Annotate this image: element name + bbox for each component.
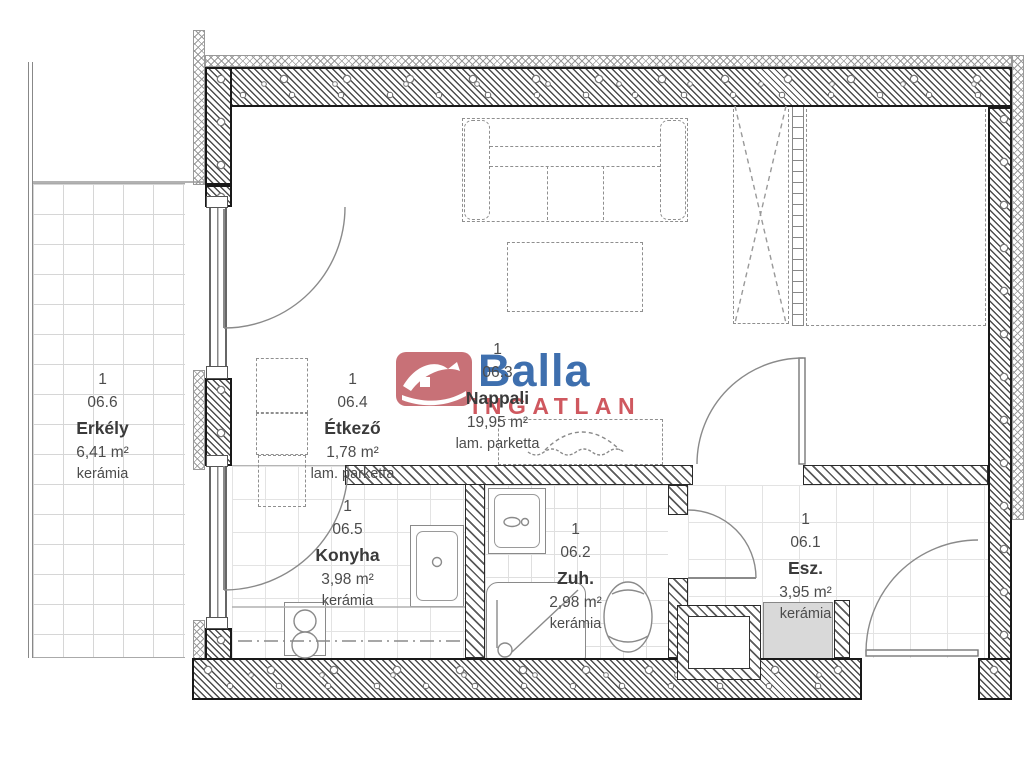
sofa (462, 118, 688, 222)
insulation-top (205, 55, 1012, 67)
room-code: 06.4 (290, 391, 415, 414)
room-area: 3,95 m² (743, 581, 868, 604)
room-level: 1 (513, 518, 638, 541)
wall-bottom-left (192, 658, 862, 700)
room-finish: kerámia (40, 464, 165, 486)
sofa-armrest-left (464, 120, 490, 220)
wall-pillar-middle (205, 378, 232, 466)
room-level: 1 (743, 508, 868, 531)
sofa-back-line-1 (490, 146, 660, 147)
radiator-strip (792, 104, 804, 326)
balcony-door-upper-arc (224, 207, 345, 328)
window-cap-3 (206, 455, 228, 467)
room-code: 06.2 (513, 541, 638, 564)
window-lower (209, 466, 227, 628)
partition-bath-left (465, 465, 485, 658)
room-label-erkely: 1 06.6 Erkély 6,41 m² kerámia (40, 368, 165, 486)
window-cap-1 (206, 196, 228, 208)
room-area: 3,98 m² (285, 568, 410, 591)
hall-door-leaf (799, 358, 805, 464)
room-area: 1,78 m² (290, 441, 415, 464)
room-area: 2,98 m² (513, 591, 638, 614)
partition-hall-top (803, 465, 988, 485)
room-level: 1 (290, 368, 415, 391)
partition-bath-right-upper (668, 485, 688, 515)
room-name: Zuh. (513, 565, 638, 591)
coffee-table (507, 242, 643, 312)
room-area: 6,41 m² (40, 441, 165, 464)
balcony-railing (28, 62, 33, 658)
room-name: Étkező (290, 415, 415, 441)
room-label-esz: 1 06.1 Esz. 3,95 m² kerámia (743, 508, 868, 626)
room-finish: kerámia (285, 591, 410, 613)
wall-right (988, 107, 1012, 660)
insulation-left-upper (193, 30, 205, 185)
wall-top (205, 67, 1012, 107)
room-finish: lam. parketta (290, 464, 415, 486)
shaft-interior (688, 616, 750, 669)
room-name: Nappali (435, 385, 560, 411)
sofa-armrest-right (660, 120, 686, 220)
insulation-right (1012, 55, 1024, 520)
room-code: 06.5 (285, 518, 410, 541)
kitchen-sink-basin (416, 531, 458, 601)
wall-bottom-right (978, 658, 1012, 700)
sofa-seat-divider-1 (547, 166, 548, 220)
room-code: 06.1 (743, 531, 868, 554)
room-level: 1 (285, 495, 410, 518)
room-name: Konyha (285, 542, 410, 568)
wall-left-upper (205, 67, 232, 185)
sofa-seat-divider-2 (603, 166, 604, 220)
room-name: Erkély (40, 415, 165, 441)
room-name: Esz. (743, 555, 868, 581)
room-level: 1 (435, 338, 560, 361)
room-label-zuh: 1 06.2 Zuh. 2,98 m² kerámia (513, 518, 638, 636)
sofa-back-line-2 (490, 166, 660, 167)
window-upper (209, 207, 227, 378)
hall-door-arc (697, 358, 803, 464)
room-label-nappali: 1 06.3 Nappali 19,95 m² lam. parketta (435, 338, 560, 456)
room-label-etkezo: 1 06.4 Étkező 1,78 m² lam. parketta (290, 368, 415, 486)
room-area: 19,95 m² (435, 411, 560, 434)
window-cap-2 (206, 366, 228, 379)
floor-plan: Balla INGATLAN 1 06.6 Erkély 6,41 m² ker… (0, 0, 1024, 768)
room-code: 06.6 (40, 391, 165, 414)
room-code: 06.3 (435, 361, 560, 384)
room-finish: kerámia (513, 614, 638, 636)
room-finish: kerámia (743, 604, 868, 626)
window-cap-4 (206, 617, 228, 629)
room-label-konyha: 1 06.5 Konyha 3,98 m² kerámia (285, 495, 410, 613)
insulation-left-middle (193, 370, 205, 470)
bed (806, 104, 986, 326)
room-finish: lam. parketta (435, 434, 560, 456)
wardrobe (733, 104, 789, 324)
room-level: 1 (40, 368, 165, 391)
